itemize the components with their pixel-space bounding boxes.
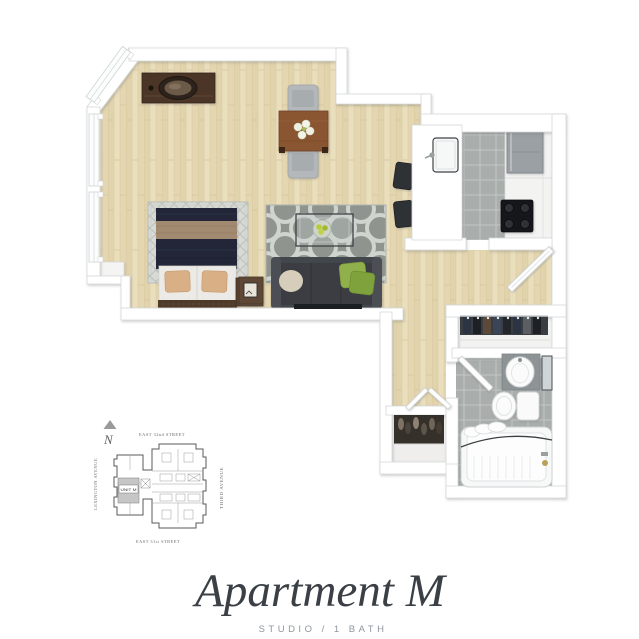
side-table: [239, 277, 263, 304]
shoe-closet: [394, 415, 444, 444]
kitchen-tile-floor: [458, 128, 508, 240]
north-arrow-icon: [104, 420, 117, 429]
cream-pillow: [279, 270, 303, 292]
step-wall-horizontal: [336, 94, 431, 104]
bed-pillow: [202, 271, 228, 293]
site-plan: N EAST 32nd STREET EAST 31st STREET LEXI…: [93, 420, 224, 544]
street-north-label: EAST 32nd STREET: [139, 432, 185, 437]
closet-top-wall: [446, 305, 566, 317]
apartment-floor-plan: N EAST 32nd STREET EAST 31st STREET LEXI…: [0, 0, 639, 639]
refrigerator: [507, 131, 543, 173]
title-block: Apartment M STUDIO / 1 BATH: [192, 565, 448, 635]
living-bottom-wall: [121, 308, 403, 320]
avenue-east-label: THIRD AVENUE: [219, 467, 224, 509]
kitchen: [501, 126, 552, 240]
coffee-table: [296, 214, 353, 246]
sofa: [271, 257, 382, 309]
shoe-closet-top-wall: [386, 406, 446, 415]
tub-faucet: [542, 460, 548, 466]
green-pillow: [349, 271, 376, 296]
bathtub: [461, 422, 552, 487]
stove: [501, 200, 533, 232]
wing-left-wall: [380, 312, 392, 474]
medicine-cabinet-mirror: [542, 356, 552, 390]
top-wall: [129, 48, 347, 61]
dresser-with-mirror: [142, 73, 215, 103]
street-south-label: EAST 31st STREET: [136, 539, 180, 544]
bed-tan-blanket: [156, 221, 237, 239]
bed-pillow: [165, 271, 191, 293]
north-label: N: [103, 432, 114, 447]
apartment-floorplan-page: N EAST 32nd STREET EAST 31st STREET LEXI…: [0, 0, 639, 639]
wing-bottom-wall: [380, 462, 456, 474]
decor-knob: [148, 85, 153, 90]
unit-m-label: UNIT M: [121, 488, 137, 492]
page-subtitle: STUDIO / 1 BATH: [259, 624, 388, 635]
kitchen-bottom-wall-b: [489, 238, 552, 250]
bath-bottom-wall: [446, 486, 566, 498]
bathroom-vanity: [502, 354, 540, 390]
bottom-left-step-v: [121, 276, 130, 308]
fruit-bowl: [313, 220, 331, 238]
page-title: Apartment M: [192, 565, 448, 617]
avenue-west-label: LEXINGTON AVENUE: [93, 458, 98, 510]
bed: [156, 208, 237, 309]
tv-soundbar: [294, 304, 362, 309]
